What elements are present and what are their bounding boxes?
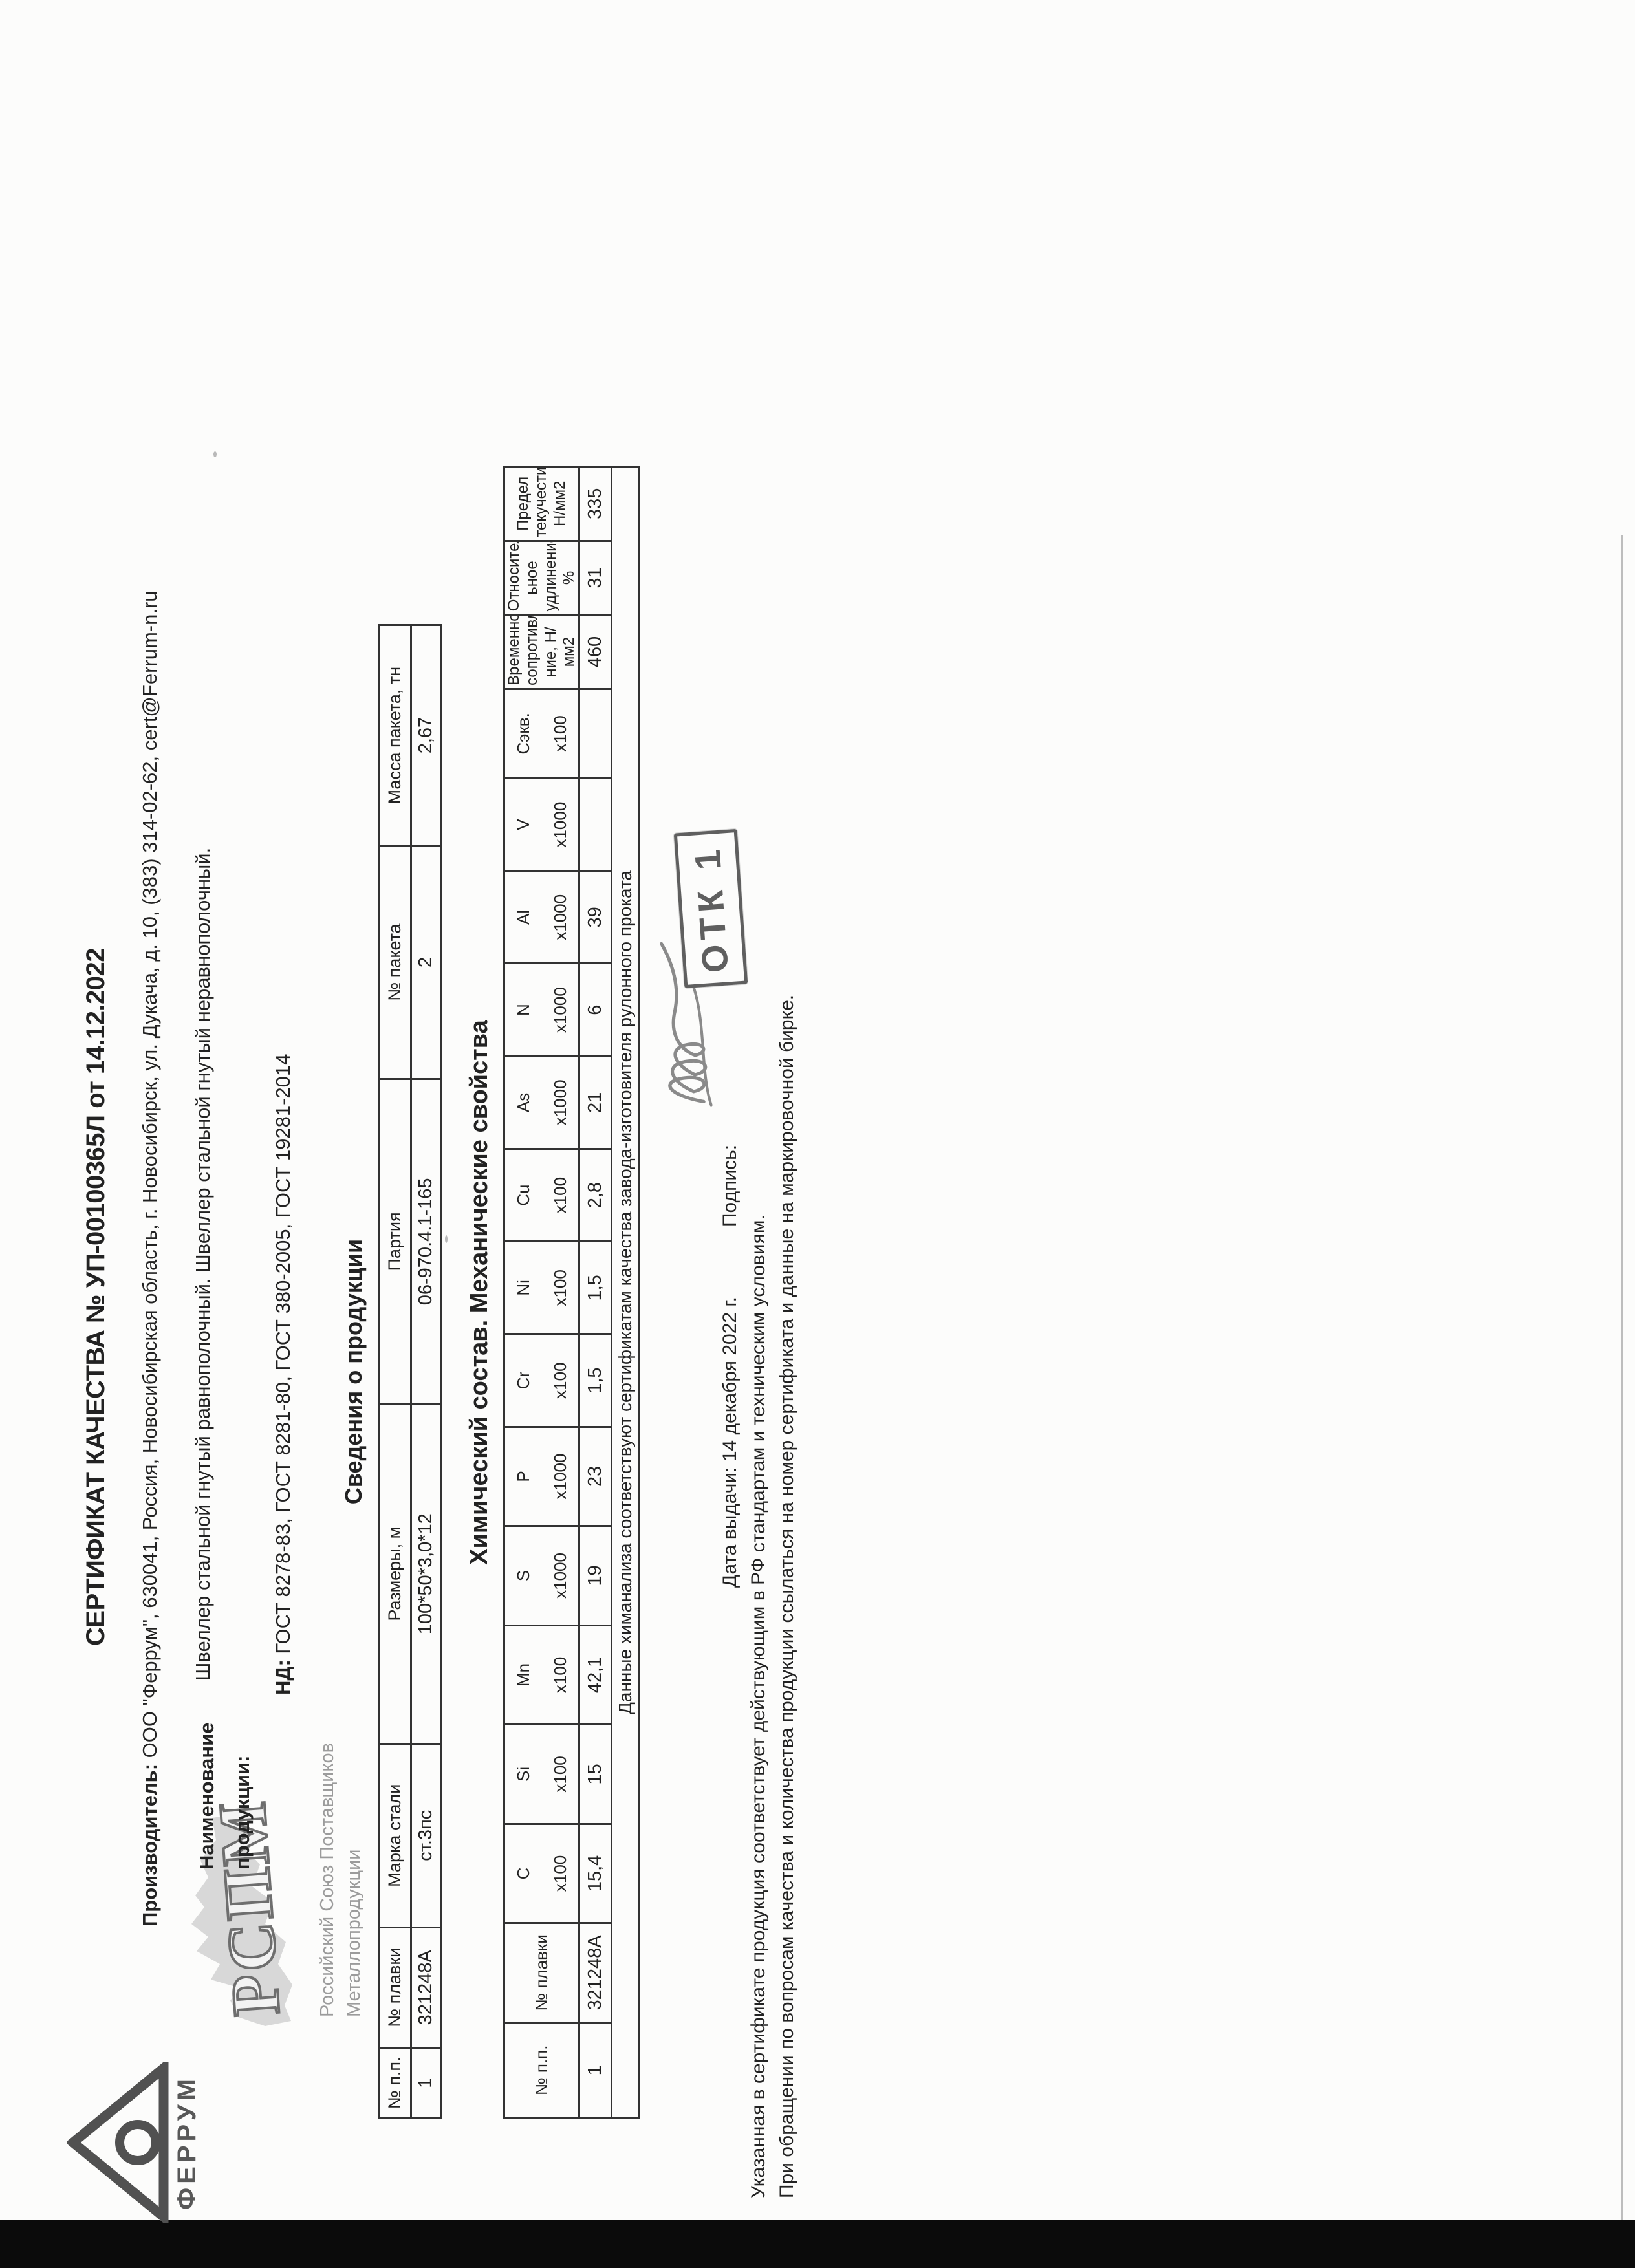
footer-note-2: При обращении по вопросам качества и кол…: [776, 995, 798, 2198]
data-cell: [579, 778, 612, 870]
data-cell: [579, 689, 612, 778]
data-cell: 335: [579, 467, 612, 541]
data-cell: 1,5: [579, 1242, 612, 1334]
ferrum-logo: ФЕРРУМ: [67, 2061, 202, 2224]
product-name-label: Наименование продукции:: [189, 1723, 260, 1870]
chem-table: № п.п.№ плавкиCх100Siх100Mnх100Sх1000Pх1…: [503, 466, 640, 2119]
certificate-title: СЕРТИФИКАТ КАЧЕСТВА № УП-00100365Л от 14…: [81, 948, 111, 1646]
header-cell: Cuх100: [504, 1149, 579, 1241]
nd-label: НД:: [272, 1659, 294, 1695]
header-cell: Масса пакета, тн: [379, 625, 411, 846]
header-cell: № п.п.: [379, 2047, 411, 2118]
scan-paper-edge-line: [1621, 535, 1623, 2220]
footer-note-1: Указанная в сертификате продукция соотве…: [748, 1215, 770, 2198]
data-cell: 31: [579, 541, 612, 615]
data-cell: 100*50*3,0*12: [411, 1404, 441, 1744]
data-cell: 06-970.4.1-165: [411, 1079, 441, 1404]
product-name-label-line2: продукции:: [224, 1723, 260, 1870]
products-table: № п.п.№ плавкиМарка сталиРазмеры, мПарти…: [378, 624, 442, 2119]
header-cell: № п.п.: [504, 2022, 579, 2118]
data-cell: 39: [579, 871, 612, 964]
data-cell: 1: [411, 2047, 441, 2118]
data-cell: 15,4: [579, 1824, 612, 1923]
header-cell: Alх1000: [504, 871, 579, 964]
header-cell: Asх1000: [504, 1056, 579, 1149]
data-cell: 19: [579, 1526, 612, 1625]
header-cell: Crх100: [504, 1334, 579, 1427]
data-cell: 6: [579, 964, 612, 1056]
header-cell: Nх1000: [504, 964, 579, 1056]
ferrum-logo-text: ФЕРРУМ: [173, 2061, 202, 2224]
data-cell: 1,5: [579, 1334, 612, 1427]
header-cell: № плавки: [379, 1927, 411, 2047]
data-cell: ст.3пс: [411, 1744, 441, 1927]
data-cell: 321248А: [579, 1923, 612, 2022]
section-title-chem: Химический состав. Механические свойства: [466, 466, 493, 2119]
data-cell: 15: [579, 1725, 612, 1824]
rspm-caption-line1: Российский Союз Поставщиков: [314, 1743, 341, 2017]
header-cell: № пакета: [379, 846, 411, 1079]
header-cell: Niх100: [504, 1242, 579, 1334]
header-cell: Pх1000: [504, 1427, 579, 1526]
header-cell: Mnх100: [504, 1625, 579, 1724]
producer-line: Производитель: ООО "Феррум", 630041, Рос…: [138, 590, 162, 1927]
scan-speck: [213, 451, 217, 457]
header-cell: Партия: [379, 1079, 411, 1404]
product-name-value: Швеллер стальной гнутый равнополочный. Ш…: [191, 848, 215, 1681]
product-name-label-line1: Наименование: [189, 1723, 224, 1870]
signature-label: Подпись:: [719, 1145, 741, 1227]
nd-line: НД: ГОСТ 8278-83, ГОСТ 8281-80, ГОСТ 380…: [272, 1054, 295, 1695]
ferrum-triangle-icon: [67, 2062, 169, 2223]
header-cell: Siх100: [504, 1725, 579, 1824]
header-cell: Относител ьное удлинение, %: [504, 541, 579, 615]
scan-speck: [445, 1235, 448, 1243]
data-cell: 2,8: [579, 1149, 612, 1241]
producer-label: Производитель:: [138, 1764, 161, 1927]
data-cell: 2,67: [411, 625, 441, 846]
header-cell: Cх100: [504, 1824, 579, 1923]
header-cell: Марка стали: [379, 1744, 411, 1927]
producer-value: ООО "Феррум", 630041, Россия, Новосибирс…: [138, 590, 161, 1758]
header-cell: Временное сопротивле ние, Н/мм2: [504, 615, 579, 689]
data-cell: 321248А: [411, 1927, 441, 2047]
data-cell: 2: [411, 846, 441, 1079]
data-cell: 23: [579, 1427, 612, 1526]
section-title-products: Сведения о продукции: [340, 624, 367, 2119]
header-cell: Сэкв.х100: [504, 689, 579, 778]
header-cell: Предел текучести, Н/мм2: [504, 467, 579, 541]
data-cell: 460: [579, 615, 612, 689]
data-cell: 1: [579, 2022, 612, 2118]
data-cell: 21: [579, 1056, 612, 1149]
scan-edge-strip: [0, 2220, 1635, 2268]
scan-page: ФЕРРУМ РСПМ Российский Союз Поставщиков …: [0, 0, 1635, 2268]
header-cell: Vх1000: [504, 778, 579, 870]
document-canvas: ФЕРРУМ РСПМ Российский Союз Поставщиков …: [0, 0, 1635, 2268]
table-note-row: Данные химанализа соответствуют сертифик…: [612, 467, 639, 2119]
header-cell: Размеры, м: [379, 1404, 411, 1744]
otk-stamp: ОТК 1: [674, 829, 748, 988]
header-cell: № плавки: [504, 1923, 579, 2022]
data-cell: 42,1: [579, 1625, 612, 1724]
header-cell: Sх1000: [504, 1526, 579, 1625]
nd-value: ГОСТ 8278-83, ГОСТ 8281-80, ГОСТ 380-200…: [272, 1054, 294, 1654]
issue-date: Дата выдачи: 14 декабря 2022 г.: [719, 1297, 741, 1588]
